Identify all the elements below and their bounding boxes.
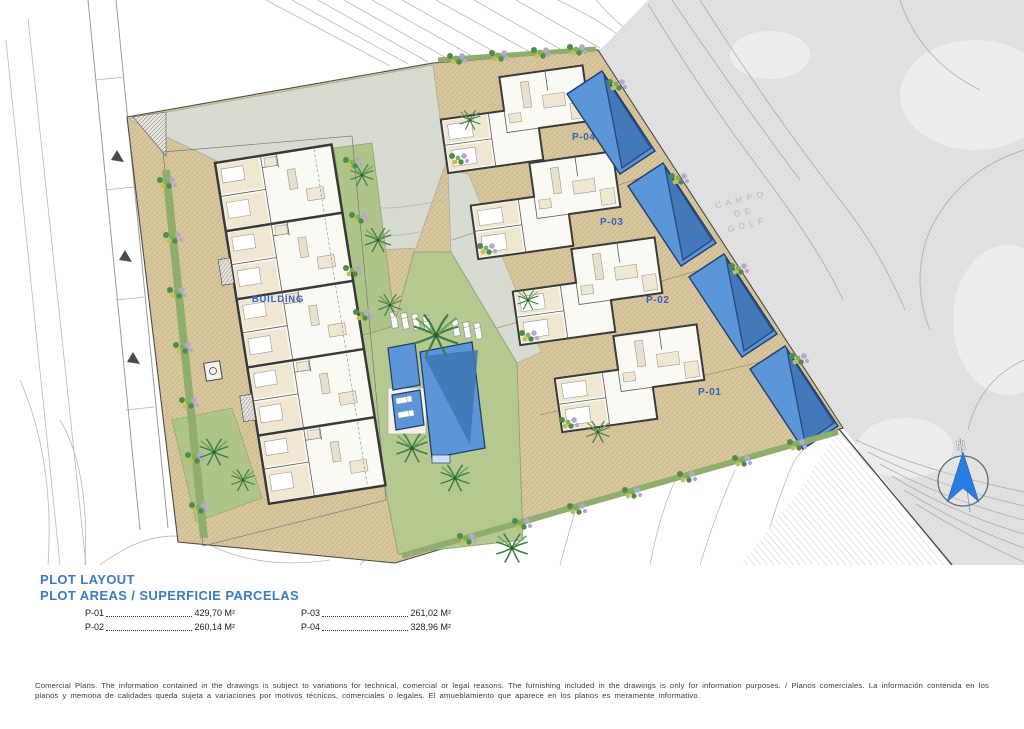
plot-areas-list: P-01 429,70 M² P-03 261,02 M² P-02 260,1… <box>85 607 457 632</box>
plot-layout-page: CAMPO DE GOLF <box>0 0 1024 729</box>
dotted-leader <box>322 630 408 631</box>
plot-label: P-02 <box>85 622 104 632</box>
plot-layout-title: PLOT LAYOUT <box>40 572 299 588</box>
villa-label-p03: P-03 <box>600 217 624 228</box>
villa-label-p01: P-01 <box>698 387 722 398</box>
disclaimer-text: Comercial Plans. The information contain… <box>35 681 989 701</box>
plot-areas-subtitle: PLOT AREAS / SUPERFICIE PARCELAS <box>40 588 299 604</box>
utility-room <box>204 361 223 381</box>
plot-area-value: 260,14 M² <box>194 622 235 632</box>
villa-label-p04: P-04 <box>572 132 596 143</box>
plot-area-value: 328,96 M² <box>410 622 451 632</box>
plot-area-row-p04: P-04 328,96 M² <box>301 621 451 632</box>
building-label: BUILDING <box>252 294 304 305</box>
dotted-leader <box>322 616 408 617</box>
villa-label-p02: P-02 <box>646 295 670 306</box>
plot-label: P-01 <box>85 608 104 618</box>
plot-area-value: 429,70 M² <box>194 608 235 618</box>
site-plan-drawing: CAMPO DE GOLF <box>0 0 1024 565</box>
plot-area-row-p03: P-03 261,02 M² <box>301 607 451 618</box>
dotted-leader <box>106 630 192 631</box>
plot-area-row-p01: P-01 429,70 M² <box>85 607 235 618</box>
road-direction-arrow <box>119 250 132 262</box>
plot-label: P-03 <box>301 608 320 618</box>
plot-label: P-04 <box>301 622 320 632</box>
plot-area-value: 261,02 M² <box>410 608 451 618</box>
dotted-leader <box>106 616 192 617</box>
road-direction-arrow <box>127 352 140 364</box>
legend-block: PLOT LAYOUT PLOT AREAS / SUPERFICIE PARC… <box>40 572 299 604</box>
plot-area-row-p02: P-02 260,14 M² <box>85 621 235 632</box>
road-direction-arrow <box>111 150 124 162</box>
